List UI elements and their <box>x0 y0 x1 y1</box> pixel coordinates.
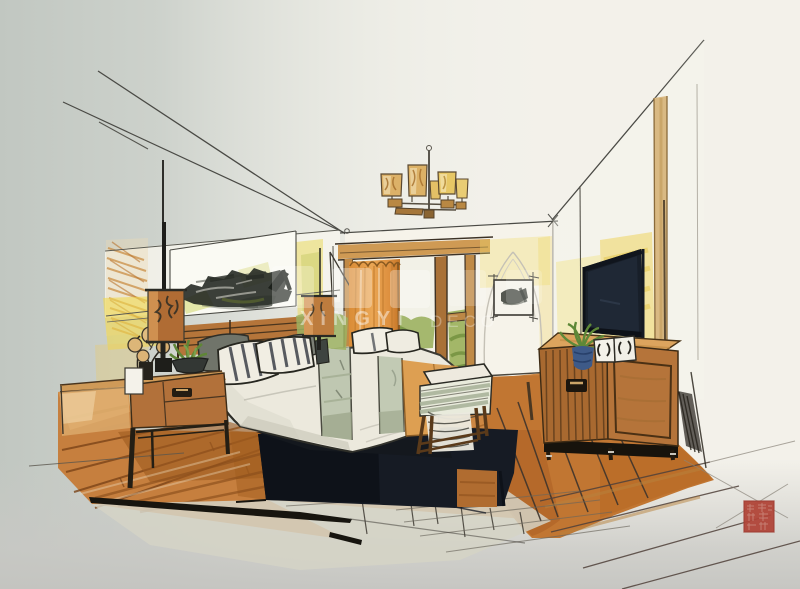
svg-text:DECO: DECO <box>430 312 499 331</box>
svg-text:XINGYI: XINGYI <box>300 308 410 330</box>
